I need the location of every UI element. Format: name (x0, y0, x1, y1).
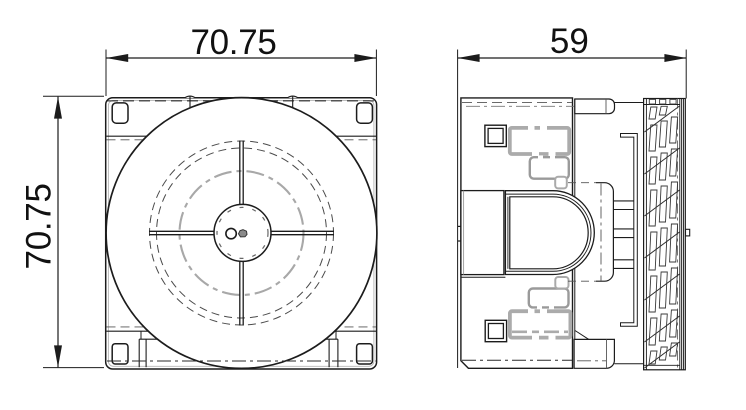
svg-text:59: 59 (550, 22, 589, 61)
svg-text:70.75: 70.75 (20, 183, 59, 269)
svg-text:70.75: 70.75 (190, 23, 276, 62)
